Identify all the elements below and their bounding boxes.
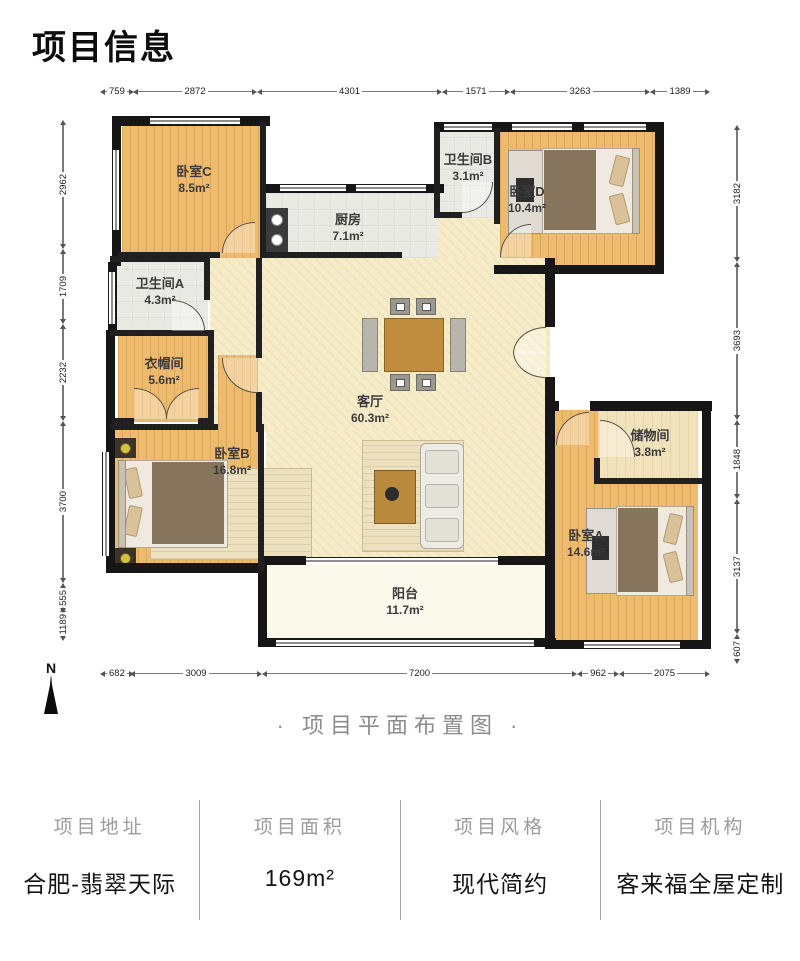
dim-top-2: 4301 [257, 86, 442, 97]
info-col-style: 项目风格 现代简约 [400, 800, 600, 920]
window [150, 117, 240, 125]
dim-left-5: 1189 [56, 607, 70, 659]
wall [590, 401, 712, 411]
wall [258, 562, 267, 646]
room-label-living: 客厅60.3m² [351, 394, 389, 426]
wall [262, 252, 402, 258]
info-col-area: 项目面积 169m² [199, 800, 399, 920]
info-label: 项目风格 [401, 812, 600, 839]
dining-bench [450, 318, 466, 372]
coffee-table [374, 470, 416, 524]
wall [106, 563, 266, 573]
hall-floor [438, 218, 500, 260]
wall [208, 330, 214, 422]
dim-right-1: 3693 [730, 262, 744, 420]
sofa-cushion [425, 450, 459, 474]
dim-left-1: 1709 [56, 249, 70, 324]
wall [204, 256, 210, 300]
info-value: 现代简约 [401, 865, 600, 899]
dim-right-0: 3182 [730, 125, 744, 262]
bed-b-headboard [118, 460, 126, 548]
wall [702, 401, 711, 649]
dim-left-4: 555 [56, 583, 70, 607]
info-value: 客来福全屋定制 [601, 865, 800, 899]
window [276, 639, 534, 647]
room-label-kitchen: 厨房7.1m² [332, 212, 363, 244]
window [356, 184, 426, 192]
wall [494, 265, 664, 274]
info-label: 项目面积 [200, 812, 399, 839]
dim-bottom-2: 7200 [262, 668, 577, 679]
dining-set [360, 298, 466, 390]
window [584, 123, 646, 131]
bed-a-blanket [618, 508, 658, 592]
info-value: 169m² [200, 865, 399, 892]
wall [498, 556, 548, 565]
dim-left-3: 3700 [56, 421, 70, 583]
bed-a-headboard [686, 506, 694, 596]
dim-right-4: 607 [730, 634, 744, 660]
wall [434, 212, 462, 218]
compass: N [46, 660, 56, 695]
info-col-agency: 项目机构 客来福全屋定制 [600, 800, 800, 920]
dining-bench [362, 318, 378, 372]
nightstand [114, 438, 136, 458]
compass-circle [50, 676, 52, 695]
dim-left-2: 2232 [56, 324, 70, 421]
dim-left-0: 2962 [56, 120, 70, 249]
wall [545, 377, 555, 403]
dim-top-4: 3263 [510, 86, 650, 97]
room-label-bedroom-b: 卧室B16.8m² [213, 446, 251, 478]
stove [266, 208, 288, 252]
dim-top-1: 2872 [133, 86, 257, 97]
window-slider [306, 557, 498, 564]
dim-bottom-3: 962 [577, 668, 619, 679]
page-title: 项目信息 [32, 20, 176, 69]
dining-chair [416, 298, 436, 315]
info-value: 合肥-翡翠天际 [0, 865, 199, 899]
wall [655, 122, 664, 274]
dim-top-5: 1389 [650, 86, 710, 97]
dim-right-2: 1848 [730, 420, 744, 499]
window [584, 641, 680, 649]
room-label-bedroom-c: 卧室C8.5m² [176, 164, 211, 196]
room-label-bedroom-d: 卧室D10.4m² [508, 184, 546, 216]
bed-d-blanket [544, 150, 596, 230]
room-label-balcony: 阳台11.7m² [386, 586, 423, 618]
room-label-bath-a: 卫生间A4.3m² [136, 276, 184, 308]
wall [594, 478, 702, 484]
wall [545, 258, 555, 327]
dining-table [384, 318, 444, 372]
window [102, 452, 110, 556]
window [512, 123, 572, 131]
room-label-bath-b: 卫生间B3.1m² [444, 152, 492, 184]
wall [110, 256, 210, 262]
room-label-storage: 储物间3.8m² [630, 428, 669, 460]
dim-top-0: 759 [100, 86, 133, 97]
dim-bottom-0: 682 [100, 668, 130, 679]
bed-d-headboard [632, 148, 640, 234]
dining-chair [416, 374, 436, 391]
info-label: 项目机构 [601, 812, 800, 839]
room-label-cloakroom: 衣帽间5.6m² [144, 356, 183, 388]
project-info-table: 项目地址 合肥-翡翠天际 项目面积 169m² 项目风格 现代简约 项目机构 客… [0, 800, 800, 920]
lamp [120, 443, 131, 454]
wall [258, 424, 264, 572]
plan-caption: · 项目平面布置图 · [0, 708, 800, 740]
room-label-bedroom-a: 卧室A14.6m² [567, 528, 605, 560]
wall [260, 122, 266, 258]
window [444, 123, 492, 131]
sofa-cushion [425, 518, 459, 542]
wall [110, 424, 218, 430]
wall [256, 258, 262, 358]
window [112, 150, 120, 230]
dining-chair [390, 298, 410, 315]
info-col-address: 项目地址 合肥-翡翠天际 [0, 800, 199, 920]
compass-needle-icon [44, 680, 58, 714]
burner [271, 234, 283, 246]
wall [494, 128, 500, 224]
kettle [385, 487, 399, 501]
info-label: 项目地址 [0, 812, 199, 839]
window [108, 272, 116, 324]
compass-north-label: N [46, 660, 56, 676]
page: 项目信息 [0, 0, 800, 961]
dim-right-3: 3137 [730, 499, 744, 634]
wall [434, 128, 440, 218]
sofa [420, 443, 464, 549]
wall [545, 410, 555, 649]
dining-chair [390, 374, 410, 391]
window [280, 184, 346, 192]
sofa-cushion [425, 484, 459, 508]
dim-bottom-1: 3009 [130, 668, 262, 679]
burner [271, 214, 283, 226]
dim-bottom-4: 2075 [619, 668, 710, 679]
dim-top-3: 1571 [442, 86, 510, 97]
